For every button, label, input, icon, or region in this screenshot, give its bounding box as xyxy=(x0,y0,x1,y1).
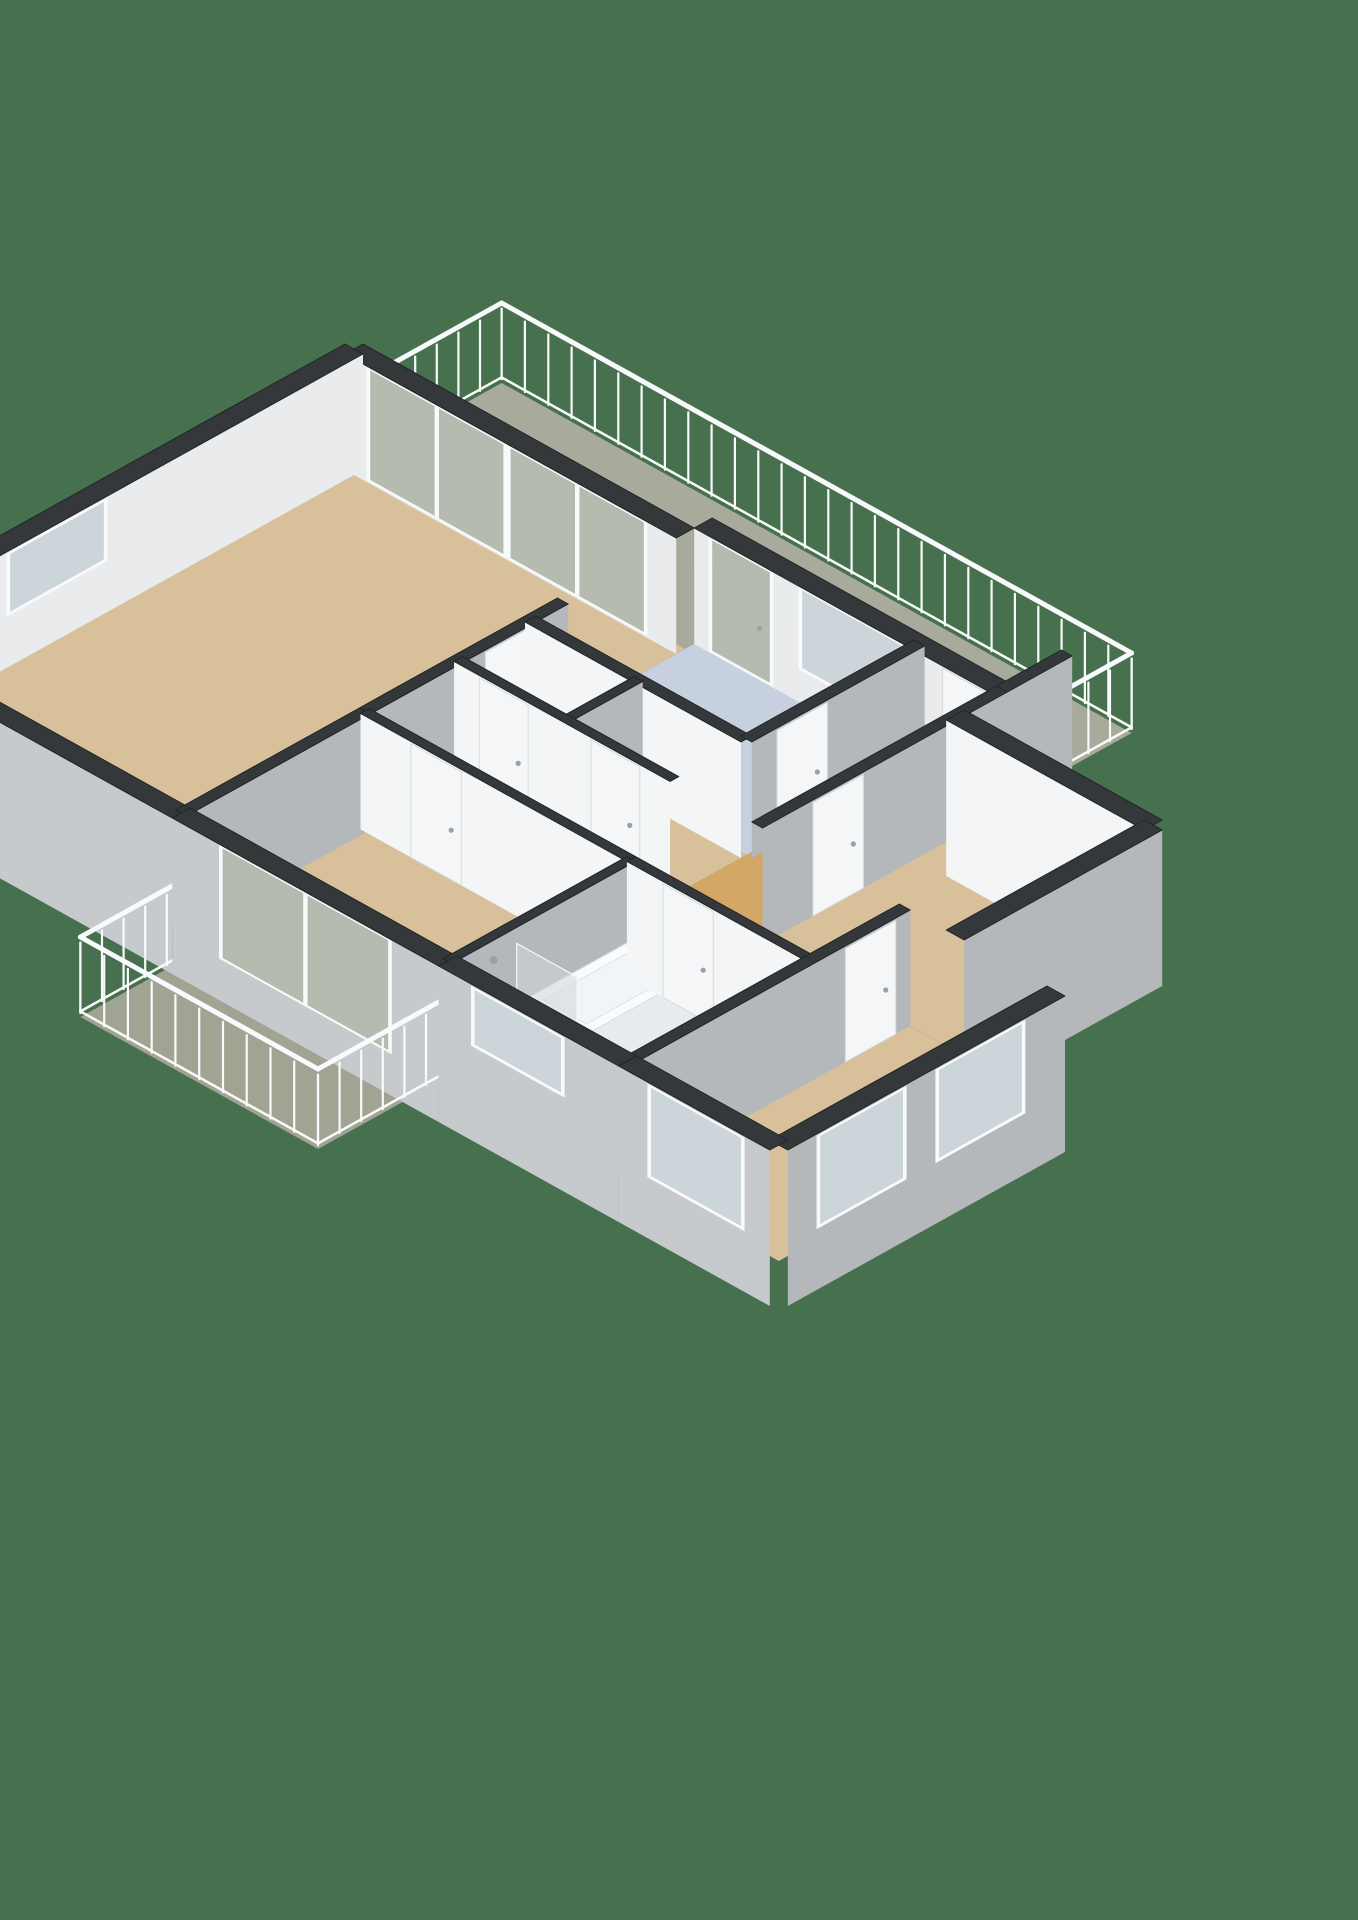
floorplan-viewport xyxy=(0,0,1358,1920)
kitchen-gallery-wall-glassdoor-handle xyxy=(757,626,762,631)
hall-east-wall-door-handle xyxy=(516,761,521,766)
floorplan-3d-render[interactable] xyxy=(0,0,1358,1920)
shower-head xyxy=(490,956,498,964)
bed3-north-wall-door-handle xyxy=(851,841,856,846)
hall-east-wall-door-handle xyxy=(627,823,632,828)
living-gallery-wall-slider-mullion xyxy=(435,406,439,518)
bath-hall-wall-door-handle xyxy=(701,968,706,973)
bed1-hall-wall-door-handle xyxy=(449,828,454,833)
living-gallery-wall-slider-mullion xyxy=(575,484,579,596)
kitchen-hall-wall-door-handle xyxy=(815,769,820,774)
bed1-west-wall-slider-mullion xyxy=(303,893,307,1005)
bath-bed2-wall-door-handle xyxy=(883,987,888,992)
